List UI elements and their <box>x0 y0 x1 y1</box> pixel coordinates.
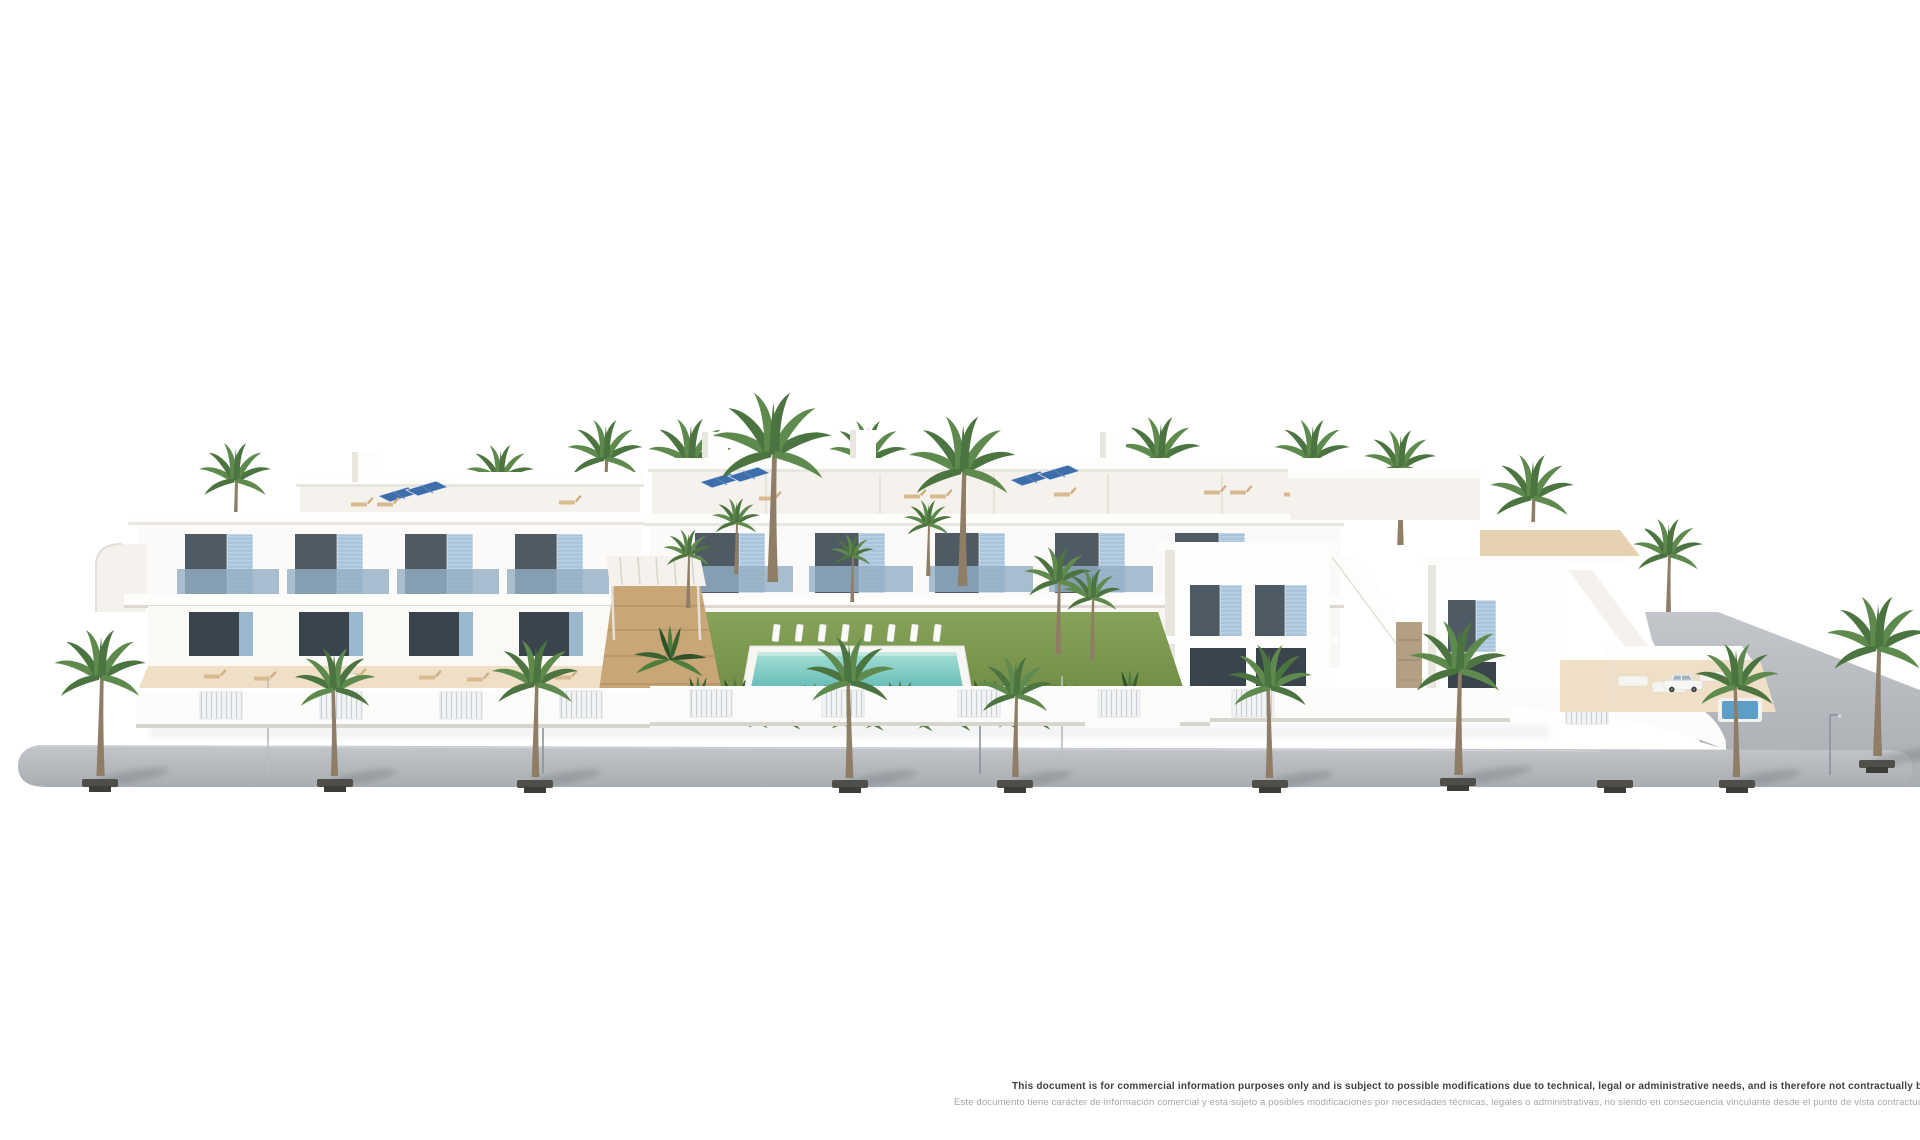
terrace-door-shutter <box>349 612 363 656</box>
tree-pit-curb <box>1259 787 1281 793</box>
tree-pit-curb <box>1004 787 1026 793</box>
tree-pit-curb <box>89 786 111 792</box>
terrace-door-glass <box>189 612 239 656</box>
balcony-glass <box>397 569 499 596</box>
tree-pit-curb <box>1726 787 1748 793</box>
tree-pit-curb <box>1866 767 1888 773</box>
slatted-gate <box>1098 690 1140 717</box>
slatted-gate <box>200 692 242 719</box>
render-scene <box>0 0 1920 1140</box>
slatted-gate <box>440 692 482 719</box>
tree-pit-curb <box>839 787 861 793</box>
perimeter-wall <box>136 686 1726 750</box>
terrace-door-shutter <box>569 612 583 656</box>
balcony-glass <box>287 569 389 596</box>
tree-pit-curb <box>1447 785 1469 791</box>
slatted-gate <box>690 690 732 717</box>
balcony-glass <box>809 566 913 592</box>
private-plunge-pool <box>1722 701 1758 719</box>
balcony-glass <box>507 569 609 596</box>
disclaimer-line-en: This document is for commercial informat… <box>1012 1081 1920 1092</box>
balcony-glass <box>929 566 1033 592</box>
tree-pit-curb <box>324 786 346 792</box>
terrace-door-shutter <box>459 612 473 656</box>
architectural-render: This document is for commercial informat… <box>0 0 1920 1140</box>
tree-pit-curb <box>524 787 546 793</box>
tree-pit-curb <box>1604 787 1626 793</box>
terrace-door-shutter <box>239 612 253 656</box>
tree-pit <box>1597 780 1633 788</box>
disclaimer-line-es: Este documento tiene carácter de informa… <box>954 1097 1920 1108</box>
balcony-glass <box>177 569 279 596</box>
slatted-gate <box>822 690 864 717</box>
page: { "page": { "width": 1920, "height": 114… <box>0 0 1920 1140</box>
terrace-door-glass <box>409 612 459 656</box>
left-block <box>96 512 654 690</box>
